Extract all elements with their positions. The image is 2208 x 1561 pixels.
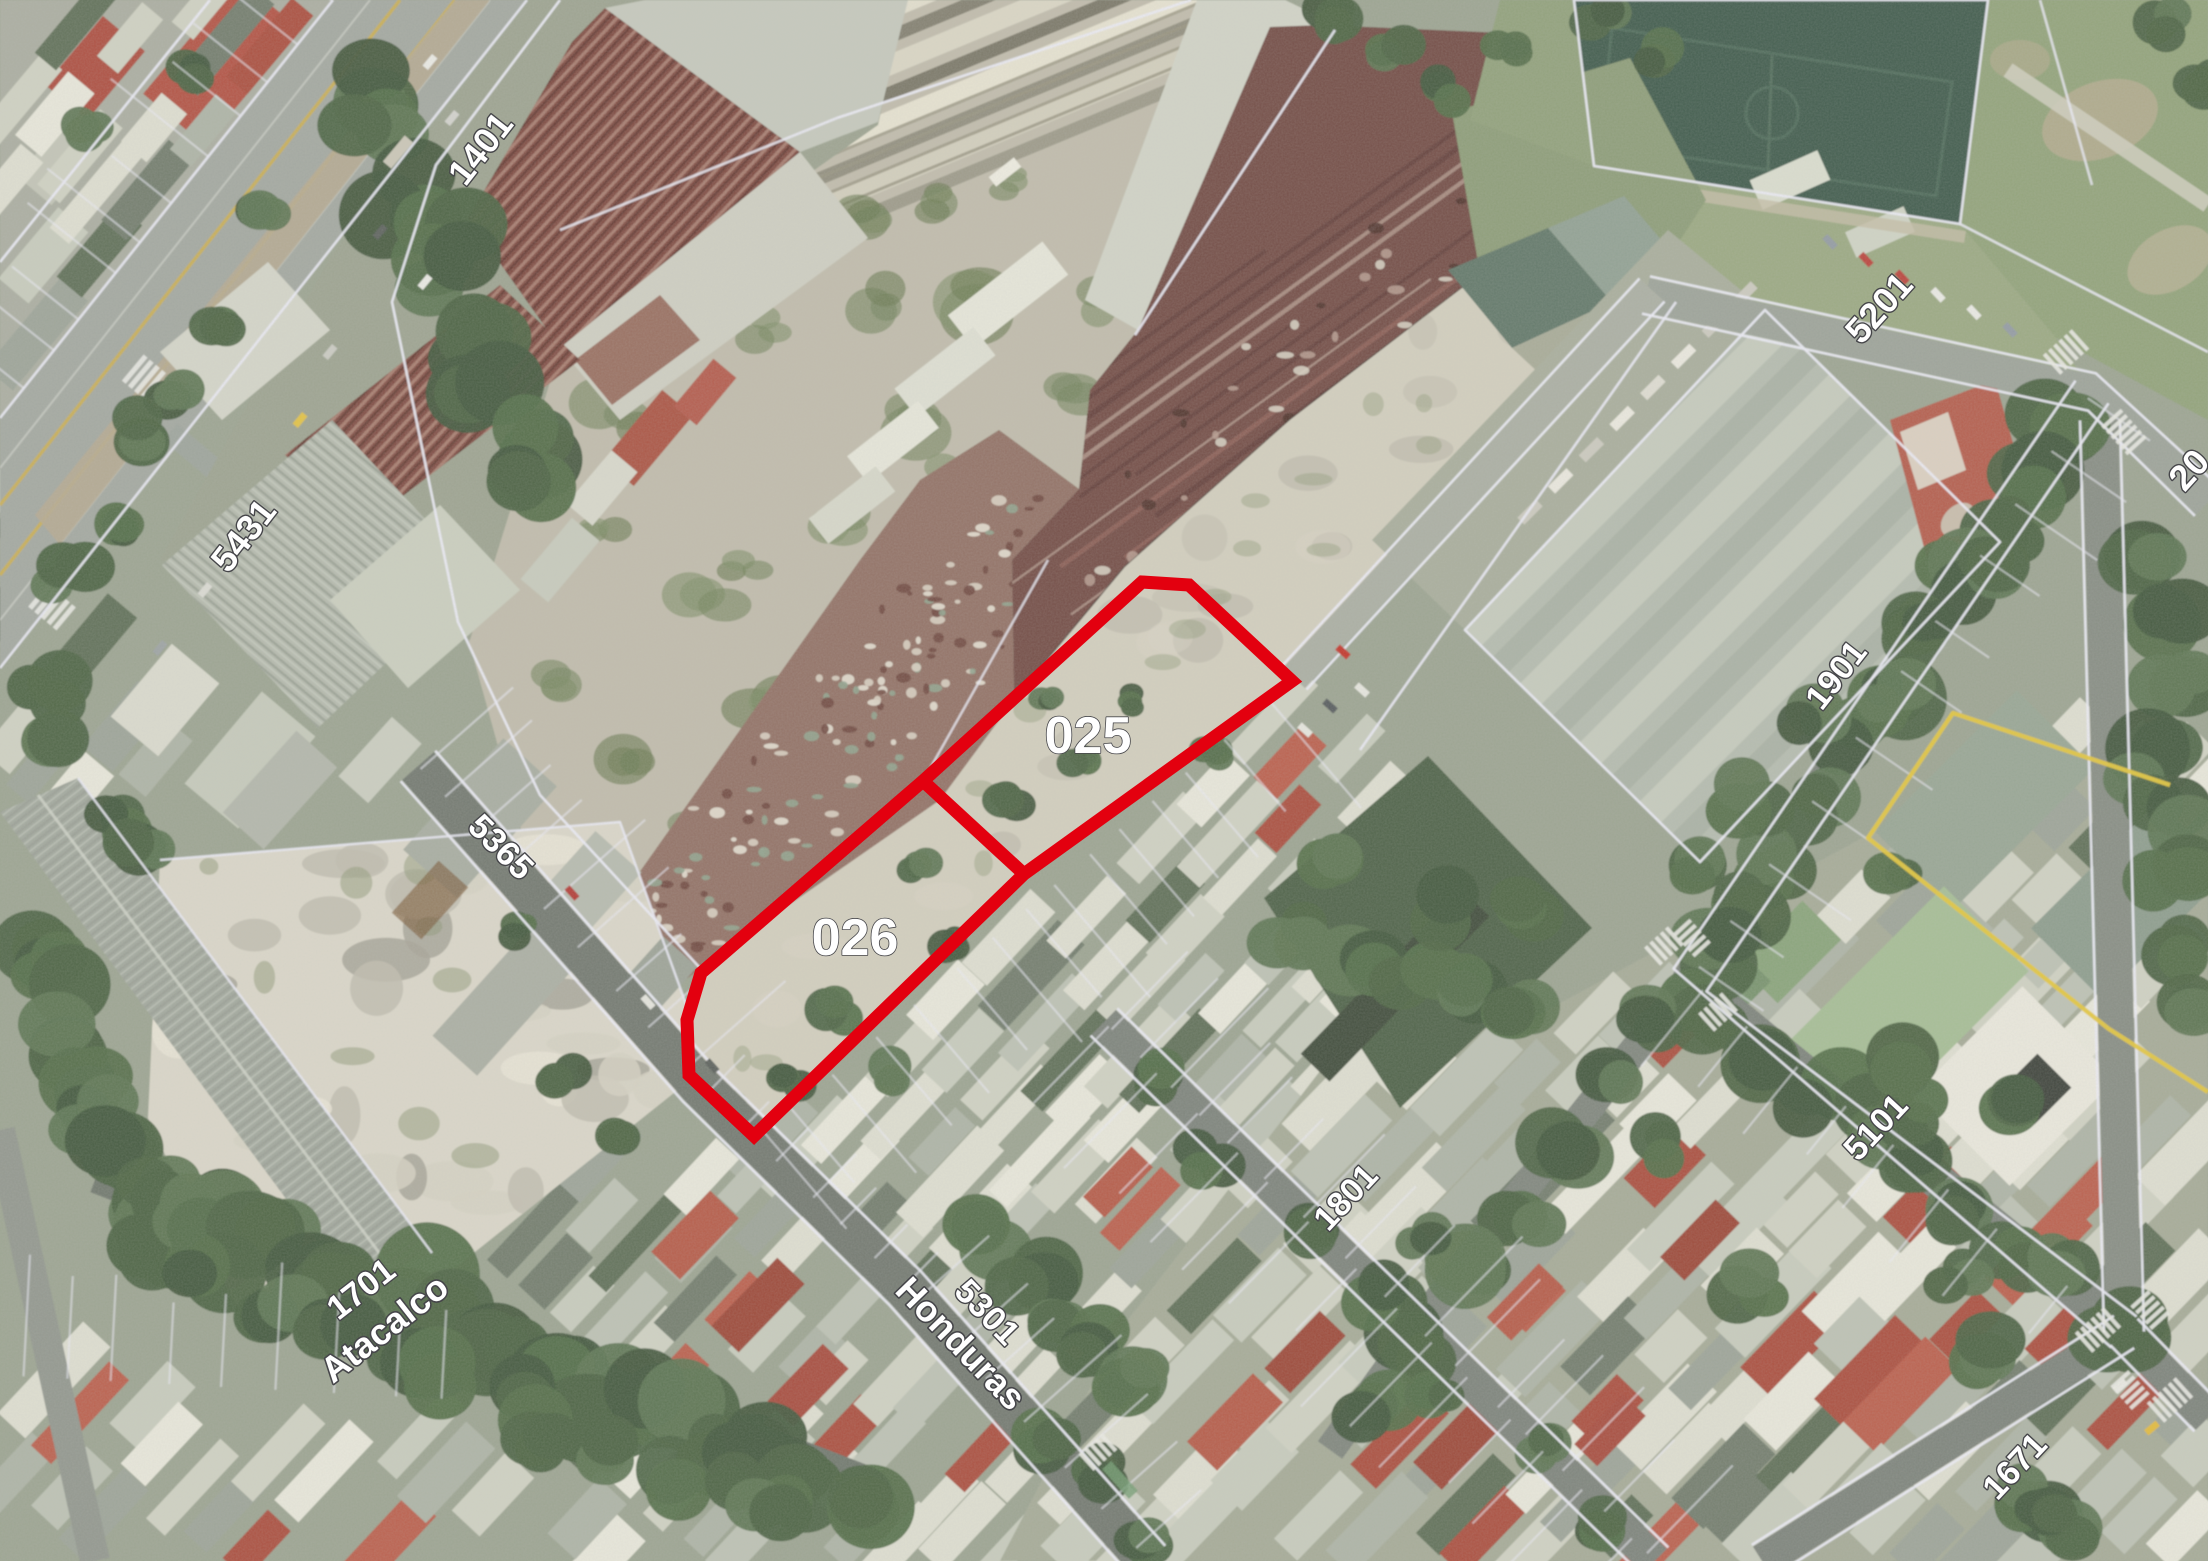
svg-text:025: 025 bbox=[1045, 707, 1132, 765]
svg-text:026: 026 bbox=[812, 909, 899, 967]
